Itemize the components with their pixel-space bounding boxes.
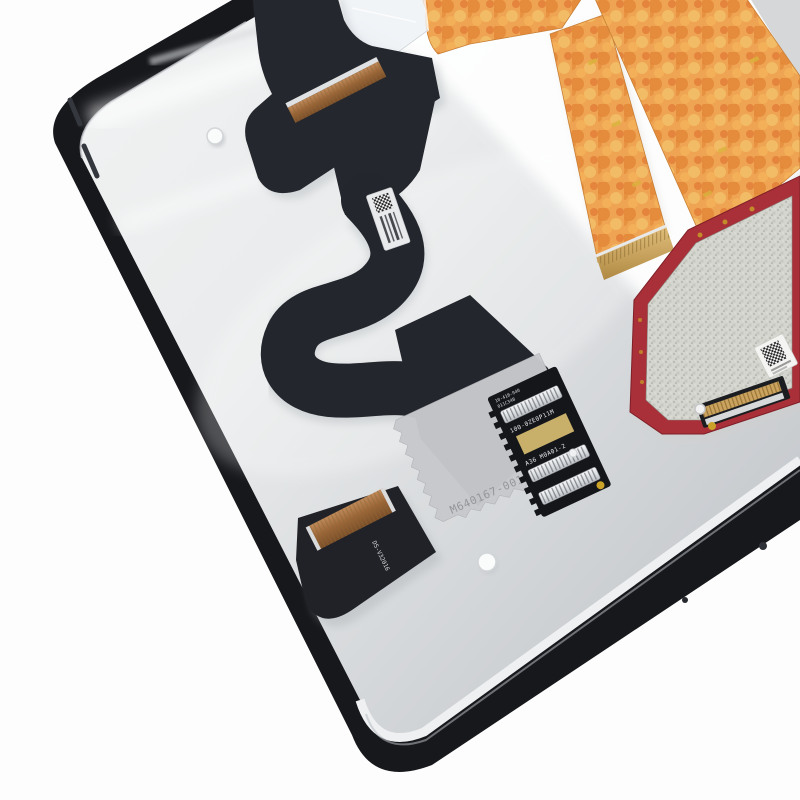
pcb-hole <box>695 404 705 414</box>
castellation <box>750 207 755 212</box>
screw-hole-small <box>569 449 577 457</box>
screw-hole <box>478 553 496 571</box>
castellation <box>698 233 703 238</box>
screw-hole <box>207 128 223 144</box>
castellation <box>640 380 644 384</box>
product-photo: M640167-001 10-41B-040 011C34B 100-0ZE0P… <box>0 0 800 800</box>
castellation <box>638 318 642 322</box>
castellation <box>639 350 643 354</box>
castellation <box>723 220 728 225</box>
lcd-assembly-photo: M640167-001 10-41B-040 011C34B 100-0ZE0P… <box>0 0 800 800</box>
bezel-hole <box>682 597 688 603</box>
gold-test-pad <box>708 422 716 430</box>
bezel-hole <box>759 542 767 550</box>
